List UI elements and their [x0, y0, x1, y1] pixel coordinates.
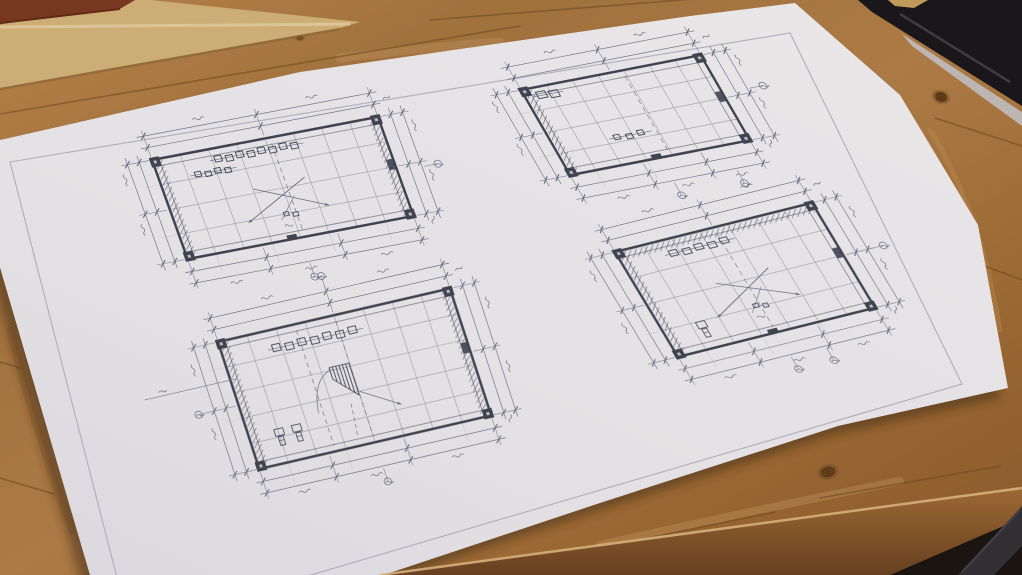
vignette: [0, 0, 1022, 575]
photo-scene: [0, 0, 1022, 575]
